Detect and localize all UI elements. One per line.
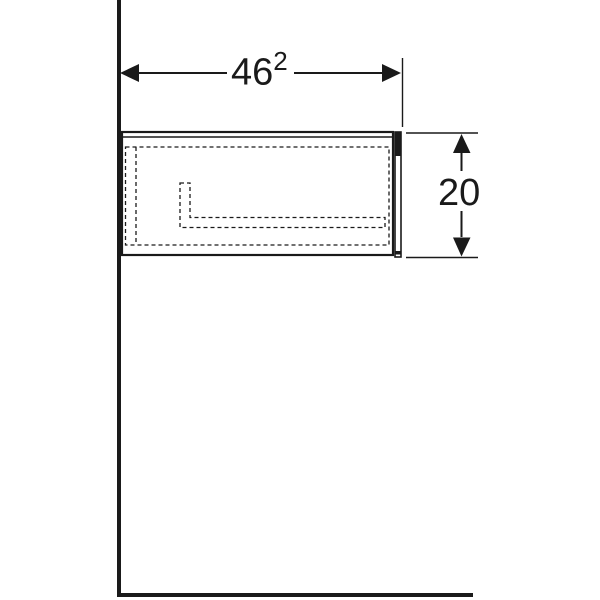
width-arrow-right-icon — [382, 64, 401, 82]
height-arrow-down-icon — [453, 238, 471, 257]
height-arrow-up-icon — [453, 134, 471, 153]
drawer-front-panel — [395, 132, 402, 257]
siphon-cutout-dashed-outline — [180, 183, 385, 228]
width-dimension: 462 — [120, 46, 403, 127]
drawing-page: 462 20 — [0, 0, 600, 600]
hidden-edges — [126, 147, 390, 245]
height-dimension: 20 — [406, 133, 480, 258]
technical-drawing: 462 20 — [0, 0, 600, 600]
cabinet-body — [122, 132, 393, 255]
width-dimension-label: 462 — [231, 46, 288, 94]
cabinet-outline — [122, 132, 393, 255]
width-dimension-superscript: 2 — [273, 46, 287, 76]
width-arrow-left-icon — [120, 64, 139, 82]
drawer-handle-fill — [395, 132, 402, 156]
drawer-box-dashed-outline — [126, 147, 390, 245]
drawer-front-bottom-edge — [395, 251, 402, 255]
height-dimension-label: 20 — [438, 172, 480, 214]
